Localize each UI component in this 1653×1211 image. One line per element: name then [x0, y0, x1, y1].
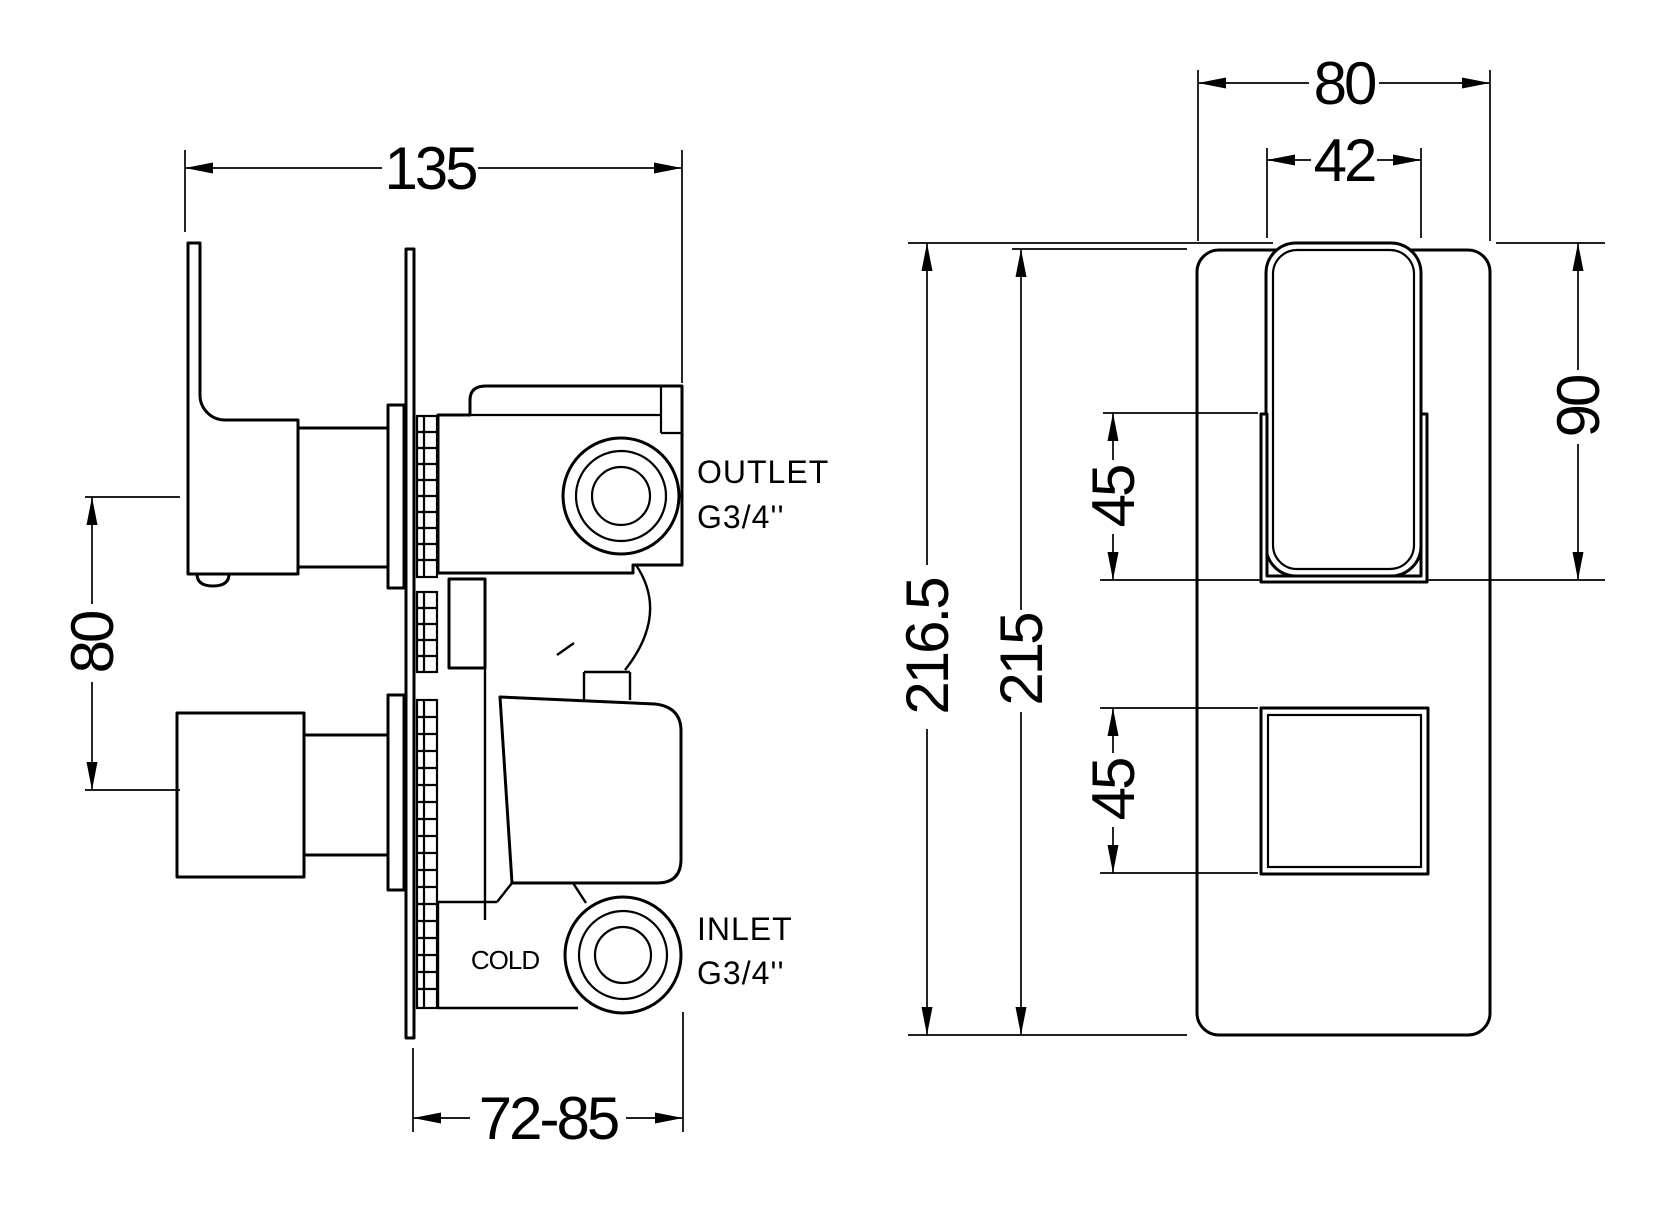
temperature-knob-side — [177, 695, 404, 890]
inlet-thread-label: G3/4'' — [697, 955, 785, 991]
front-view: 80 42 216.5 215 — [894, 50, 1612, 1035]
dim-overall-height-label: 216.5 — [894, 579, 961, 715]
outlet-label: OUTLET — [697, 454, 829, 490]
lever-flange — [388, 405, 404, 588]
dim-plate-width-label: 80 — [1314, 50, 1376, 117]
dim-depth: 72-85 — [413, 1012, 683, 1152]
valve-body-upper — [438, 386, 682, 573]
threaded-rod-middle — [417, 579, 485, 672]
valve-body-lower: COLD — [438, 697, 681, 1013]
technical-drawing: COLD 135 — [0, 0, 1653, 1211]
dim-handle-spacing: 80 — [59, 497, 180, 790]
dim-width-label: 135 — [384, 135, 476, 202]
dim-plate-height-label: 215 — [988, 614, 1055, 706]
knob-grip — [177, 713, 304, 877]
knob-flange — [388, 695, 404, 890]
dim-spacing-label: 80 — [59, 611, 126, 673]
dim-width: 135 — [185, 135, 682, 383]
lever-stem — [298, 428, 388, 567]
cold-marking: COLD — [471, 945, 539, 975]
dim-handle-width-label: 42 — [1314, 127, 1375, 194]
temperature-knob-front — [1261, 708, 1428, 874]
dim-upper-offset-label: 45 — [1080, 466, 1147, 527]
wall-plate-side — [406, 249, 414, 1038]
dim-depth-label: 72-85 — [479, 1085, 618, 1152]
threaded-rod-lower — [417, 700, 437, 1008]
inlet-port — [565, 897, 681, 1013]
threaded-rod-upper — [417, 416, 437, 577]
dim-overall-height: 216.5 — [894, 243, 961, 1035]
cartridge-nut — [449, 579, 485, 668]
lever-handle-side — [188, 243, 404, 588]
lever-handle-front — [1266, 243, 1421, 576]
dim-plate-height: 215 — [988, 249, 1055, 1035]
outlet-port — [563, 438, 679, 554]
dim-lever-height: 90 — [1496, 243, 1612, 580]
side-view: COLD 135 — [59, 135, 829, 1152]
knob-stem — [304, 735, 388, 855]
drawing-canvas: COLD 135 — [0, 0, 1653, 1211]
dim-lower-offset-label: 45 — [1080, 759, 1147, 820]
lever-pivot-pin — [197, 574, 229, 586]
inlet-label: INLET — [697, 911, 793, 947]
dim-lever-height-label: 90 — [1545, 375, 1612, 437]
cartridge-housing — [500, 697, 681, 883]
lever-grip — [188, 243, 298, 574]
outlet-thread-label: G3/4'' — [697, 499, 785, 535]
dim-handle-width: 42 — [1267, 127, 1421, 238]
port-labels: OUTLET G3/4'' INLET G3/4'' — [697, 454, 829, 991]
